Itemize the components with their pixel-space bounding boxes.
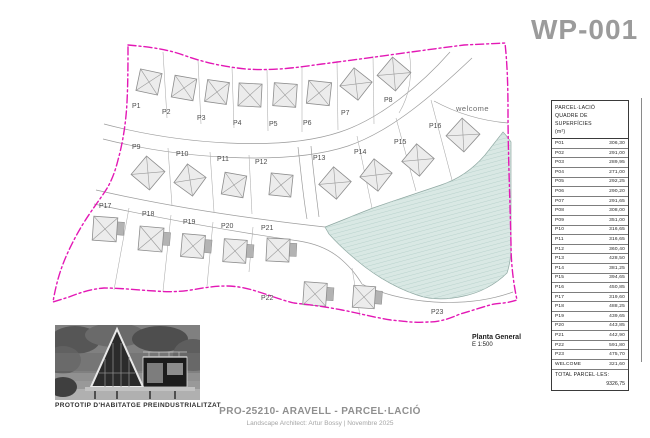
row-code: P08 [555, 208, 564, 213]
plot-label-P8: P8 [384, 97, 393, 104]
row-area: 291,00 [609, 151, 625, 156]
row-code: P18 [555, 304, 564, 309]
building-P18 [138, 226, 171, 253]
row-area: 591,80 [609, 343, 625, 348]
plot-label-P5: P5 [269, 121, 278, 128]
table-header-line2: QUADRE DE SUPERFÍCIES [555, 112, 625, 128]
plot-label-P10: P10 [176, 151, 189, 158]
row-area: 308,00 [609, 208, 625, 213]
row-code: P19 [555, 314, 564, 319]
frame-line [641, 98, 642, 362]
table-row-P04: P04271,00 [552, 168, 628, 178]
plot-label-P21: P21 [261, 225, 274, 232]
plot-label-P4: P4 [233, 120, 242, 127]
table-row-P09: P09351,00 [552, 216, 628, 226]
row-code: P20 [555, 323, 564, 328]
row-code: P21 [555, 333, 564, 338]
table-rows: P01306,30P02291,00P03289,95P04271,00P052… [552, 139, 628, 369]
table-header: PARCEL·LACIÓ QUADRE DE SUPERFÍCIES (m²) [552, 101, 628, 139]
table-row-P23: P23475,70 [552, 350, 628, 360]
plot-label-P12: P12 [255, 159, 268, 166]
plot-label-P17: P17 [99, 203, 112, 210]
prototype-house-photo [55, 325, 200, 400]
row-area: 306,30 [609, 141, 625, 146]
table-row-P21: P21442,90 [552, 331, 628, 341]
building-P17 [92, 216, 125, 242]
table-row-P11: P11316,65 [552, 235, 628, 245]
row-area: 442,90 [609, 333, 625, 338]
row-code: P23 [555, 352, 564, 357]
plot-label-P2: P2 [162, 109, 171, 116]
row-area: 321,60 [609, 362, 625, 367]
table-row-P12: P12360,40 [552, 245, 628, 255]
table-row-WELCOME: WELCOME321,60 [552, 360, 628, 370]
row-code: P15 [555, 275, 564, 280]
row-code: P14 [555, 266, 564, 271]
building-P12 [269, 173, 293, 197]
project-title: PRO-25210- ARAVELL - PARCEL·LACIÓ [170, 406, 470, 417]
table-header-line3: (m²) [555, 128, 625, 136]
row-code: P11 [555, 237, 564, 242]
table-row-P08: P08308,00 [552, 206, 628, 216]
plot-label-P6: P6 [303, 120, 312, 127]
table-row-P16: P16450,85 [552, 283, 628, 293]
building-P8 [377, 57, 411, 91]
plot-label-P9: P9 [132, 144, 141, 151]
table-row-P17: P17319,60 [552, 293, 628, 303]
plot-label-P19: P19 [183, 219, 196, 226]
table-header-line1: PARCEL·LACIÓ [555, 104, 625, 112]
table-row-P15: P15394,65 [552, 274, 628, 284]
row-code: P02 [555, 151, 564, 156]
table-total-row: TOTAL PARCEL·LES: 9326,75 [552, 370, 628, 390]
row-code: P03 [555, 160, 564, 165]
building-P9 [131, 156, 165, 190]
row-code: P12 [555, 247, 564, 252]
building-P15 [402, 144, 434, 176]
table-row-P03: P03289,95 [552, 158, 628, 168]
total-label: TOTAL PARCEL·LES: [555, 372, 625, 378]
plot-label-P18: P18 [142, 211, 155, 218]
building-P1 [136, 69, 162, 95]
building-P10 [174, 164, 206, 196]
row-code: P07 [555, 199, 564, 204]
plot-label-P23: P23 [431, 309, 444, 316]
building-P2 [171, 75, 196, 100]
plot-label-P1: P1 [132, 103, 141, 110]
building-P21 [266, 238, 297, 263]
row-code: P22 [555, 343, 564, 348]
row-code: P13 [555, 256, 564, 261]
building-P6 [306, 80, 331, 105]
row-area: 443,85 [609, 323, 625, 328]
plot-label-P11: P11 [217, 156, 229, 163]
row-code: P09 [555, 218, 564, 223]
row-code: WELCOME [555, 362, 581, 367]
plot-label-P16: P16 [429, 123, 442, 130]
table-row-P22: P22591,80 [552, 341, 628, 351]
building-P7 [340, 68, 372, 100]
table-row-P06: P06290,20 [552, 187, 628, 197]
building-P23 [352, 285, 382, 309]
table-row-P19: P19439,65 [552, 312, 628, 322]
row-area: 439,65 [609, 314, 625, 319]
plot-label-P14: P14 [354, 149, 367, 156]
table-row-P02: P02291,00 [552, 149, 628, 159]
plot-label-P7: P7 [341, 110, 350, 117]
row-area: 428,50 [609, 256, 625, 261]
scale-note: Planta General E 1:500 [472, 334, 521, 348]
welcome-plot-label: welcome [455, 104, 489, 113]
building-P14 [360, 159, 392, 191]
plot-label-P3: P3 [197, 115, 206, 122]
drawing-sheet: WP-001 [0, 0, 650, 438]
row-code: P10 [555, 227, 564, 232]
table-row-P20: P20443,85 [552, 322, 628, 332]
row-code: P04 [555, 170, 564, 175]
project-subtitle: Landscape Architect: Artur Bossy | Novem… [170, 420, 470, 427]
row-area: 316,65 [609, 227, 625, 232]
scale-value: E 1:500 [472, 342, 521, 348]
building-P4 [238, 83, 262, 107]
title-block: PRO-25210- ARAVELL - PARCEL·LACIÓ Landsc… [170, 406, 470, 427]
row-area: 292,25 [609, 179, 625, 184]
building-P3 [205, 80, 230, 105]
row-area: 291,65 [609, 199, 625, 204]
row-area: 319,60 [609, 295, 625, 300]
plot-label-P13: P13 [313, 155, 326, 162]
building-P20 [223, 239, 255, 264]
building-P5 [273, 83, 298, 108]
row-code: P06 [555, 189, 564, 194]
row-area: 450,85 [609, 285, 625, 290]
row-area: 316,65 [609, 237, 625, 242]
row-area: 351,00 [609, 218, 625, 223]
building-P16 [446, 118, 480, 152]
plot-label-P20: P20 [221, 223, 234, 230]
building-P22 [303, 282, 335, 307]
table-row-P14: P14381,25 [552, 264, 628, 274]
row-area: 488,25 [609, 304, 625, 309]
table-row-P10: P10316,65 [552, 226, 628, 236]
row-area: 475,70 [609, 352, 625, 357]
row-code: P05 [555, 179, 564, 184]
building-P19 [181, 234, 213, 260]
surface-table: PARCEL·LACIÓ QUADRE DE SUPERFÍCIES (m²) … [551, 100, 629, 391]
row-area: 381,25 [609, 266, 625, 271]
plot-label-P22: P22 [261, 295, 274, 302]
row-area: 290,20 [609, 189, 625, 194]
table-row-P18: P18488,25 [552, 302, 628, 312]
building-P13 [319, 167, 351, 199]
table-row-P01: P01306,30 [552, 139, 628, 149]
table-row-P13: P13428,50 [552, 254, 628, 264]
plot-label-P15: P15 [394, 139, 407, 146]
row-code: P17 [555, 295, 564, 300]
row-code: P16 [555, 285, 564, 290]
total-value: 9326,75 [555, 381, 625, 387]
building-P11 [221, 172, 246, 197]
table-row-P05: P05292,25 [552, 178, 628, 188]
scale-title: Planta General [472, 334, 521, 341]
table-row-P07: P07291,65 [552, 197, 628, 207]
row-area: 271,00 [609, 170, 625, 175]
row-area: 289,95 [609, 160, 625, 165]
row-code: P01 [555, 141, 564, 146]
row-area: 394,65 [609, 275, 625, 280]
row-area: 360,40 [609, 247, 625, 252]
